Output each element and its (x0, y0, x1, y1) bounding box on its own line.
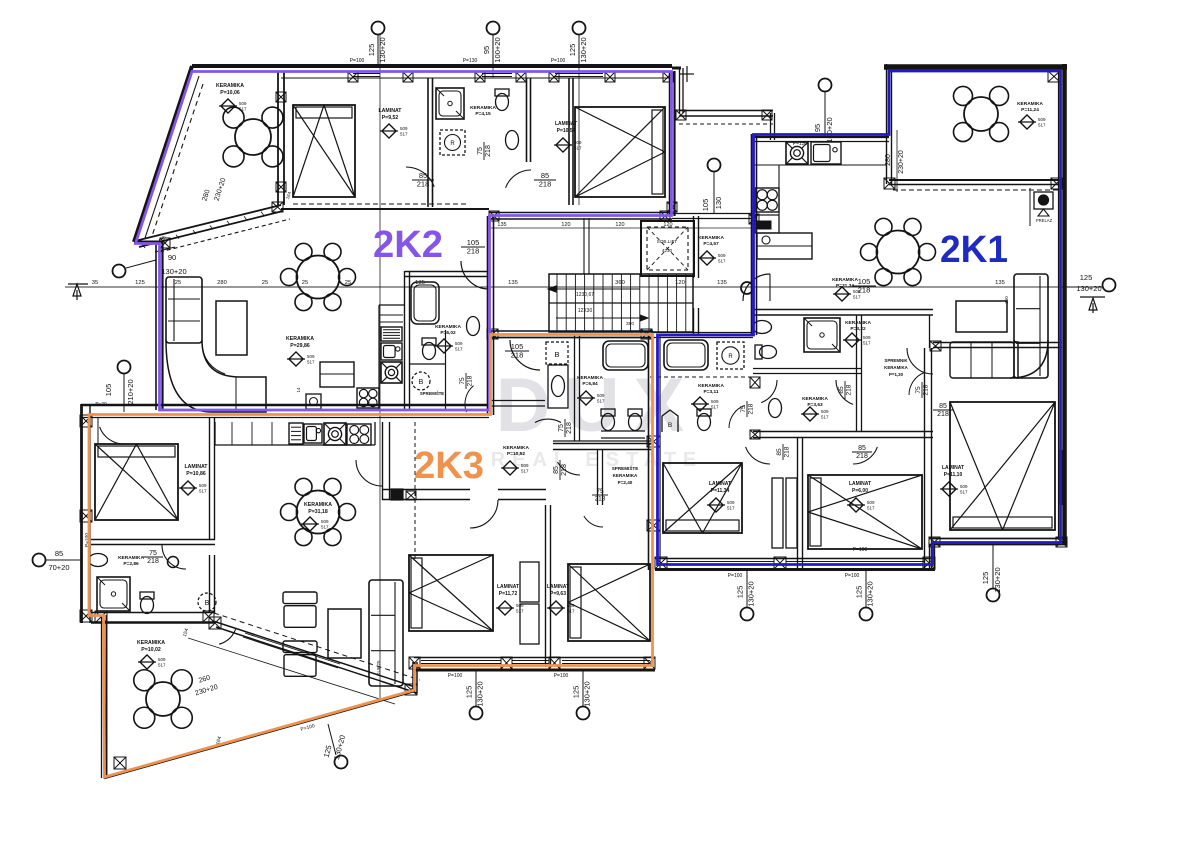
svg-text:135: 135 (508, 280, 518, 286)
svg-text:509: 509 (711, 399, 719, 404)
svg-text:509: 509 (455, 341, 463, 346)
svg-text:P=9,52: P=9,52 (382, 115, 399, 121)
svg-text:P=2,86: P=2,86 (123, 561, 139, 567)
svg-text:P=11,34: P=11,34 (711, 488, 730, 494)
svg-text:2K1: 2K1 (940, 229, 1008, 271)
svg-text:130+20: 130+20 (579, 37, 588, 62)
svg-text:KERAMIKA: KERAMIKA (884, 365, 908, 370)
svg-text:KERAMIKA: KERAMIKA (1017, 101, 1043, 107)
svg-text:218: 218 (784, 446, 791, 457)
svg-text:KERAMIKA: KERAMIKA (435, 324, 461, 330)
svg-text:125: 125 (135, 280, 145, 286)
svg-text:130+20: 130+20 (866, 581, 875, 606)
svg-text:130+20: 130+20 (476, 681, 485, 706)
svg-text:P=100: P=100 (448, 673, 463, 679)
svg-text:509: 509 (158, 657, 166, 662)
svg-text:509: 509 (727, 500, 735, 505)
svg-text:P=100: P=100 (551, 58, 566, 64)
svg-text:135: 135 (995, 280, 1005, 286)
svg-text:120: 120 (615, 222, 624, 228)
svg-text:517: 517 (516, 609, 524, 614)
svg-text:P=100: P=100 (350, 58, 365, 64)
svg-text:KERAMIKA: KERAMIKA (304, 502, 332, 508)
svg-text:135: 135 (497, 222, 506, 228)
svg-text:509: 509 (400, 126, 408, 131)
svg-text:130+20: 130+20 (378, 37, 387, 62)
svg-text:25: 25 (262, 280, 268, 286)
svg-text:P=100: P=100 (853, 547, 868, 553)
svg-text:R: R (450, 141, 455, 147)
svg-text:P=6,84: P=6,84 (582, 381, 598, 387)
svg-text:KERAMIKA: KERAMIKA (286, 336, 314, 342)
svg-text:P=6,02: P=6,02 (440, 330, 456, 336)
svg-text:85: 85 (553, 466, 560, 474)
svg-text:509: 509 (199, 483, 207, 488)
svg-text:P=100: P=100 (554, 673, 569, 679)
svg-text:P=31,34: P=31,34 (836, 283, 854, 289)
svg-text:75: 75 (477, 147, 484, 155)
svg-text:P=9,63: P=9,63 (550, 591, 566, 597)
svg-text:KERAMIKA: KERAMIKA (832, 277, 858, 283)
svg-text:85: 85 (939, 403, 947, 410)
svg-text:105: 105 (104, 384, 113, 397)
svg-text:280: 280 (217, 280, 227, 286)
svg-text:517: 517 (1038, 123, 1046, 128)
svg-text:2K2: 2K2 (373, 224, 443, 266)
svg-text:105: 105 (701, 199, 710, 212)
svg-text:509: 509 (516, 603, 524, 608)
svg-text:70+20: 70+20 (48, 563, 69, 572)
svg-text:75: 75 (149, 550, 157, 557)
svg-text:517: 517 (567, 609, 575, 614)
svg-text:230+20: 230+20 (898, 150, 905, 174)
svg-text:KERAMIKA: KERAMIKA (802, 396, 828, 402)
svg-text:509: 509 (718, 253, 726, 258)
svg-text:P=1,30: P=1,30 (889, 372, 904, 377)
svg-text:85: 85 (776, 448, 783, 456)
svg-text:LAMINAT: LAMINAT (942, 465, 964, 471)
svg-text:125: 125 (367, 44, 376, 57)
svg-text:509: 509 (821, 409, 829, 414)
svg-text:517: 517 (400, 132, 408, 137)
svg-text:KERAMIKA: KERAMIKA (470, 105, 496, 111)
svg-text:KERAMIKA: KERAMIKA (137, 640, 165, 646)
svg-text:509: 509 (239, 101, 247, 106)
svg-text:P=10,52: P=10,52 (507, 451, 525, 457)
svg-text:130+20: 130+20 (161, 267, 186, 276)
svg-text:LAMINAT: LAMINAT (709, 481, 731, 487)
svg-text:218: 218 (539, 180, 552, 189)
svg-text:KERAMIKA: KERAMIKA (216, 83, 244, 89)
svg-text:LAMINAT: LAMINAT (185, 464, 209, 470)
svg-text:125: 125 (981, 572, 990, 585)
svg-text:75: 75 (596, 488, 604, 495)
svg-text:517: 517 (718, 259, 726, 264)
svg-text:100+20: 100+20 (825, 117, 834, 142)
svg-text:4230: 4230 (662, 248, 673, 253)
svg-text:SPREMIŠTE: SPREMIŠTE (612, 464, 639, 471)
svg-text:14: 14 (296, 387, 301, 393)
svg-text:130+20: 130+20 (583, 681, 592, 706)
svg-text:SOB.LIFT: SOB.LIFT (657, 239, 678, 244)
svg-text:509: 509 (521, 463, 529, 468)
svg-text:130+20: 130+20 (1076, 284, 1101, 293)
svg-text:85: 85 (838, 386, 845, 394)
svg-text:P=6,00: P=6,00 (852, 488, 868, 494)
svg-text:517: 517 (960, 490, 968, 495)
svg-text:509: 509 (574, 140, 582, 145)
svg-text:125: 125 (1080, 273, 1093, 282)
svg-text:509: 509 (960, 484, 968, 489)
svg-text:B: B (419, 379, 424, 386)
svg-text:218: 218 (417, 180, 430, 189)
svg-text:SPREMIŠTE: SPREMIŠTE (420, 391, 444, 396)
svg-text:360: 360 (615, 280, 625, 286)
svg-text:25: 25 (302, 280, 308, 286)
svg-text:218: 218 (467, 375, 474, 386)
svg-text:130+20: 130+20 (993, 567, 1002, 592)
svg-text:218: 218 (846, 384, 853, 395)
svg-text:218: 218 (856, 453, 868, 460)
svg-text:P=11,72: P=11,72 (499, 591, 518, 597)
svg-text:P=10,02: P=10,02 (141, 647, 161, 653)
svg-text:P=130: P=130 (463, 58, 478, 64)
svg-text:2K3: 2K3 (414, 445, 484, 487)
svg-text:218: 218 (511, 351, 524, 360)
svg-text:218: 218 (147, 558, 159, 565)
svg-text:517: 517 (307, 360, 315, 365)
svg-text:R: R (728, 354, 733, 360)
svg-text:P=11,24: P=11,24 (1021, 107, 1039, 113)
svg-text:LAMINAT: LAMINAT (555, 121, 577, 127)
svg-text:KERAMIKA: KERAMIKA (698, 383, 724, 389)
svg-text:125: 125 (855, 586, 864, 599)
svg-text:517: 517 (853, 295, 861, 300)
svg-text:SPREMNIK: SPREMNIK (884, 358, 908, 363)
svg-text:P=10,86: P=10,86 (186, 471, 206, 477)
svg-text:218: 218 (923, 384, 930, 395)
svg-text:517: 517 (158, 663, 166, 668)
svg-text:B: B (554, 350, 559, 359)
svg-text:B: B (668, 422, 672, 429)
svg-text:135: 135 (717, 280, 727, 286)
svg-text:LAMINAT: LAMINAT (849, 481, 871, 487)
svg-text:P=11,10: P=11,10 (944, 472, 963, 478)
svg-text:120: 120 (561, 222, 570, 228)
svg-text:KERAMIKA: KERAMIKA (698, 235, 724, 241)
svg-text:517: 517 (597, 399, 605, 404)
svg-text:517: 517 (863, 341, 871, 346)
svg-text:P=3,11: P=3,11 (703, 389, 718, 395)
svg-text:P=10,54: P=10,54 (557, 128, 576, 134)
svg-text:509: 509 (567, 603, 575, 608)
svg-text:218: 218 (937, 411, 949, 418)
svg-text:12X30: 12X30 (578, 308, 593, 314)
svg-text:509: 509 (597, 393, 605, 398)
svg-text:130+20: 130+20 (747, 581, 756, 606)
svg-text:125: 125 (465, 686, 474, 699)
svg-text:509: 509 (307, 354, 315, 359)
svg-text:90: 90 (168, 253, 176, 262)
svg-text:B: B (205, 600, 210, 607)
svg-text:P=10,06: P=10,06 (220, 90, 240, 96)
svg-text:509: 509 (853, 289, 861, 294)
svg-text:85: 85 (858, 445, 866, 452)
svg-text:509: 509 (867, 500, 875, 505)
svg-text:517: 517 (727, 506, 735, 511)
svg-text:125: 125 (568, 44, 577, 57)
svg-text:218: 218 (467, 247, 480, 256)
svg-text:218: 218 (485, 145, 492, 157)
svg-text:85: 85 (55, 549, 63, 558)
svg-text:KERAMIKA: KERAMIKA (118, 555, 144, 561)
svg-text:P=3,22: P=3,22 (850, 326, 866, 332)
svg-text:517: 517 (239, 107, 247, 112)
svg-text:KU6 25: KU6 25 (376, 660, 381, 676)
svg-text:380: 380 (626, 321, 634, 327)
svg-text:95: 95 (813, 124, 822, 132)
svg-text:LAMINAT: LAMINAT (379, 108, 403, 114)
svg-text:35: 35 (92, 280, 98, 286)
svg-text:P=29,86: P=29,86 (290, 343, 310, 349)
svg-text:75: 75 (558, 424, 565, 432)
svg-text:LAMINAT: LAMINAT (547, 584, 569, 590)
svg-text:P=31,18: P=31,18 (308, 509, 328, 515)
svg-text:218: 218 (561, 464, 568, 476)
svg-text:350: 350 (1004, 296, 1009, 304)
svg-text:509: 509 (321, 519, 329, 524)
svg-text:509: 509 (863, 335, 871, 340)
svg-text:517: 517 (521, 469, 529, 474)
svg-text:517: 517 (821, 415, 829, 420)
svg-text:75: 75 (459, 377, 466, 385)
svg-text:517: 517 (711, 405, 719, 410)
svg-text:210+20: 210+20 (126, 379, 135, 404)
svg-text:95: 95 (482, 46, 491, 54)
svg-text:KERAMIKA: KERAMIKA (577, 375, 603, 381)
svg-text:KERAMIKA: KERAMIKA (845, 320, 871, 326)
svg-text:125: 125 (736, 586, 745, 599)
svg-text:1230,67: 1230,67 (576, 292, 594, 298)
svg-text:100+20: 100+20 (493, 37, 502, 62)
svg-text:218: 218 (748, 403, 755, 414)
svg-text:517: 517 (321, 525, 329, 530)
svg-text:218: 218 (595, 496, 606, 503)
svg-text:125: 125 (572, 686, 581, 699)
svg-text:75: 75 (915, 386, 922, 394)
svg-text:P=100: P=100 (845, 573, 860, 579)
svg-text:25: 25 (175, 280, 181, 286)
svg-text:P=2,40: P=2,40 (618, 480, 633, 485)
svg-text:509: 509 (1038, 117, 1046, 122)
svg-text:LAMINAT: LAMINAT (497, 584, 519, 590)
svg-text:KERAMIKA: KERAMIKA (613, 473, 638, 478)
svg-text:PRELAZ: PRELAZ (1036, 218, 1053, 223)
svg-text:517: 517 (574, 146, 582, 151)
svg-text:517: 517 (199, 489, 207, 494)
svg-text:P=4,57: P=4,57 (703, 241, 719, 247)
svg-text:130: 130 (714, 197, 723, 210)
svg-text:517: 517 (867, 506, 875, 511)
svg-text:P=100: P=100 (728, 573, 743, 579)
svg-text:517: 517 (455, 347, 463, 352)
svg-text:KERAMIKA: KERAMIKA (503, 445, 529, 451)
svg-text:P=4,15: P=4,15 (475, 111, 491, 117)
svg-text:280: 280 (885, 154, 892, 166)
svg-text:218: 218 (566, 422, 573, 434)
